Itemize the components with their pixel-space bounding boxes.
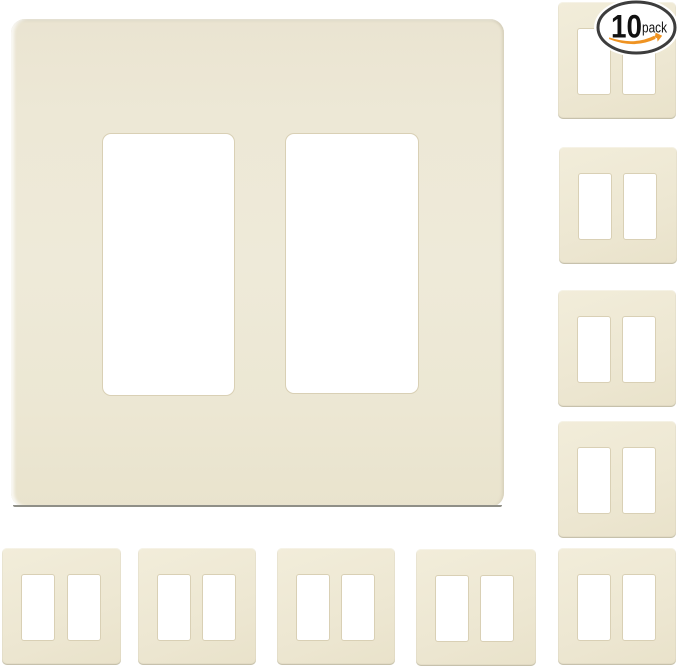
svg-text:10: 10 [611,9,642,45]
svg-text:pack: pack [642,20,667,37]
